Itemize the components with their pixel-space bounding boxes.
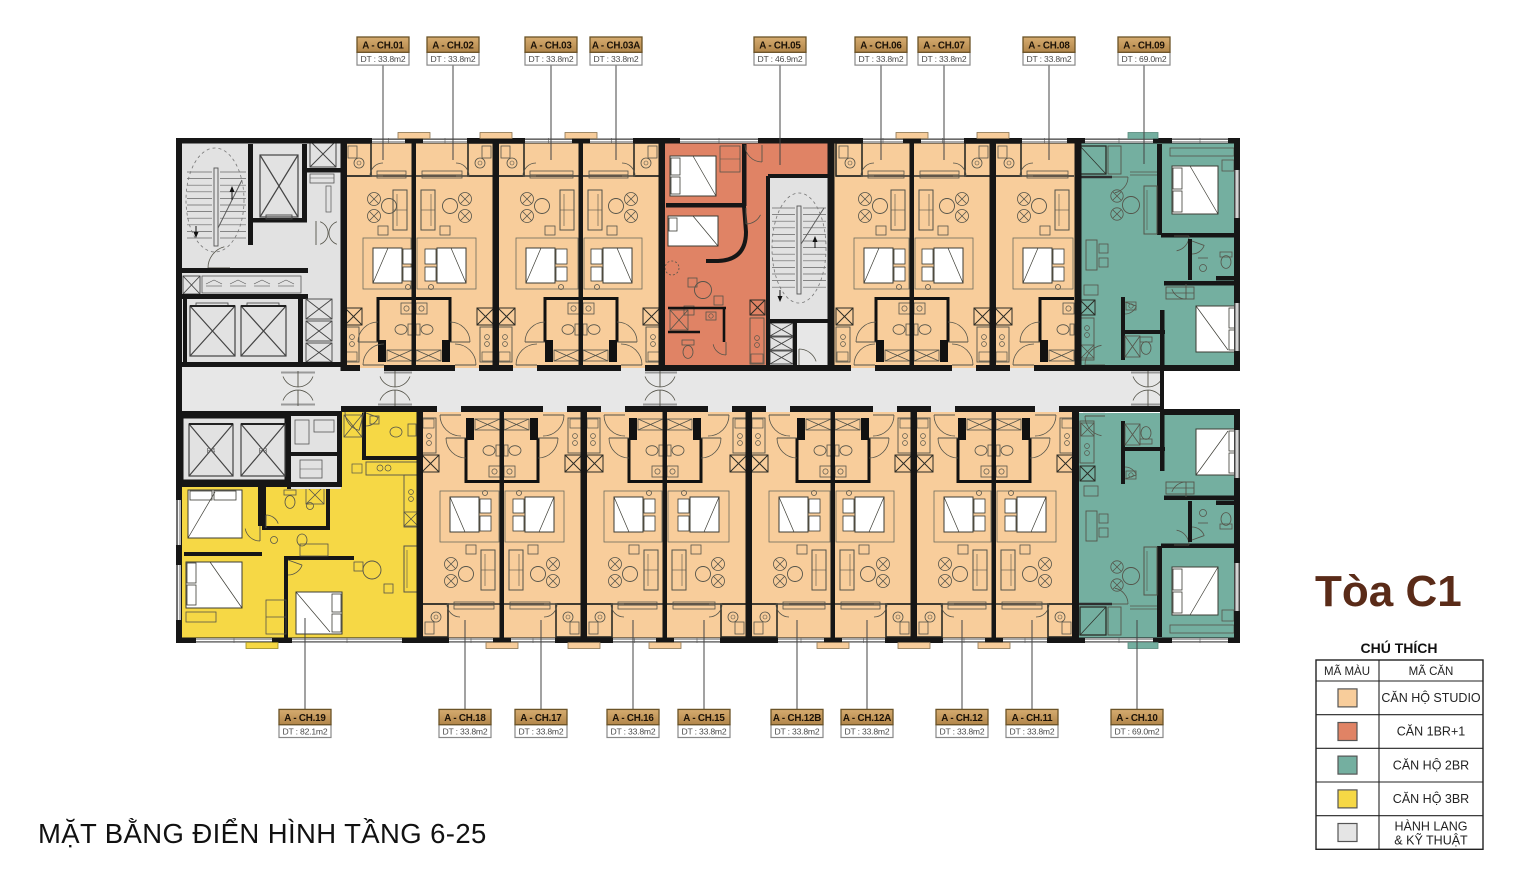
svg-text:DT : 33.8m2: DT : 33.8m2 bbox=[922, 54, 967, 64]
svg-text:DT : 33.8m2: DT : 33.8m2 bbox=[443, 727, 488, 737]
svg-text:CHÚ THÍCH: CHÚ THÍCH bbox=[1361, 639, 1438, 656]
svg-text:DT : 33.8m2: DT : 33.8m2 bbox=[594, 54, 639, 64]
svg-text:DT : 33.8m2: DT : 33.8m2 bbox=[1010, 727, 1055, 737]
svg-text:DT : 69.0m2: DT : 69.0m2 bbox=[1122, 54, 1167, 64]
svg-text:A - CH.18: A - CH.18 bbox=[444, 713, 486, 724]
svg-text:A - CH.07: A - CH.07 bbox=[923, 41, 965, 52]
svg-text:DT : 33.8m2: DT : 33.8m2 bbox=[859, 54, 904, 64]
svg-text:A - CH.12: A - CH.12 bbox=[941, 713, 983, 724]
svg-text:DT : 33.8m2: DT : 33.8m2 bbox=[1027, 54, 1072, 64]
svg-text:P3: P3 bbox=[259, 448, 268, 455]
svg-text:CĂN 1BR+1: CĂN 1BR+1 bbox=[1397, 724, 1465, 739]
svg-text:A - CH.16: A - CH.16 bbox=[612, 713, 654, 724]
svg-text:DT : 33.8m2: DT : 33.8m2 bbox=[519, 727, 564, 737]
svg-text:DT : 33.8m2: DT : 33.8m2 bbox=[529, 54, 574, 64]
svg-text:A - CH.08: A - CH.08 bbox=[1028, 41, 1070, 52]
svg-text:A - CH.17: A - CH.17 bbox=[520, 713, 562, 724]
svg-text:Tòa C1: Tòa C1 bbox=[1315, 567, 1462, 616]
svg-text:A - CH.12B: A - CH.12B bbox=[773, 713, 821, 724]
svg-text:A - CH.06: A - CH.06 bbox=[860, 41, 902, 52]
svg-text:A - CH.09: A - CH.09 bbox=[1123, 41, 1165, 52]
svg-text:A - CH.05: A - CH.05 bbox=[759, 41, 801, 52]
svg-text:A - CH.03: A - CH.03 bbox=[530, 41, 572, 52]
svg-text:MẶT BẰNG ĐIỂN HÌNH TẦNG 6-25: MẶT BẰNG ĐIỂN HÌNH TẦNG 6-25 bbox=[38, 818, 487, 849]
svg-text:& KỸ THUẬT: & KỸ THUẬT bbox=[1394, 833, 1468, 848]
svg-text:A - CH.10: A - CH.10 bbox=[1116, 713, 1158, 724]
svg-text:CĂN HỘ STUDIO: CĂN HỘ STUDIO bbox=[1381, 690, 1481, 705]
svg-text:DT : 33.8m2: DT : 33.8m2 bbox=[845, 727, 890, 737]
svg-text:A - CH.19: A - CH.19 bbox=[284, 713, 326, 724]
svg-text:DT : 69.0m2: DT : 69.0m2 bbox=[1115, 727, 1160, 737]
svg-text:P4: P4 bbox=[207, 448, 216, 455]
svg-text:HÀNH LANG: HÀNH LANG bbox=[1395, 819, 1468, 834]
svg-text:DT : 33.8m2: DT : 33.8m2 bbox=[940, 727, 985, 737]
svg-text:A - CH.02: A - CH.02 bbox=[432, 41, 474, 52]
svg-text:DT : 33.8m2: DT : 33.8m2 bbox=[775, 727, 820, 737]
svg-text:MÃ MÀU: MÃ MÀU bbox=[1324, 665, 1370, 678]
svg-text:DT : 33.8m2: DT : 33.8m2 bbox=[611, 727, 656, 737]
svg-text:DT : 33.8m2: DT : 33.8m2 bbox=[431, 54, 476, 64]
svg-text:A - CH.12A: A - CH.12A bbox=[843, 713, 891, 724]
svg-text:DT : 82.1m2: DT : 82.1m2 bbox=[283, 727, 328, 737]
svg-text:DT : 33.8m2: DT : 33.8m2 bbox=[682, 727, 727, 737]
svg-text:DT : 33.8m2: DT : 33.8m2 bbox=[361, 54, 406, 64]
svg-text:CĂN HỘ 3BR: CĂN HỘ 3BR bbox=[1393, 791, 1469, 806]
svg-text:A - CH.11: A - CH.11 bbox=[1012, 713, 1054, 724]
svg-text:A - CH.01: A - CH.01 bbox=[362, 41, 404, 52]
svg-text:CĂN HỘ 2BR: CĂN HỘ 2BR bbox=[1393, 757, 1469, 772]
svg-text:A - CH.15: A - CH.15 bbox=[683, 713, 725, 724]
svg-text:DT : 46.9m2: DT : 46.9m2 bbox=[758, 54, 803, 64]
svg-text:MÃ CĂN: MÃ CĂN bbox=[1409, 665, 1454, 678]
svg-text:A - CH.03A: A - CH.03A bbox=[592, 41, 640, 52]
